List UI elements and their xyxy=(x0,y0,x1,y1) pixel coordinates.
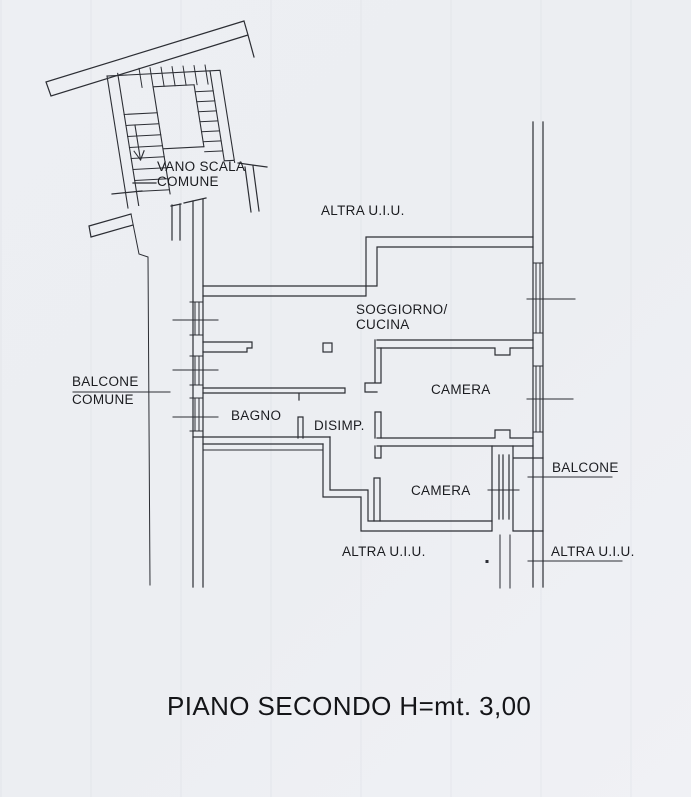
camera-middle-wall xyxy=(377,430,533,446)
stair-down-arrow-icon xyxy=(130,125,146,161)
label-camera-upper: CAMERA xyxy=(431,383,491,398)
window-left-1 xyxy=(173,302,218,335)
label-altra-uiu-bottom-right: ALTRA U.I.U. xyxy=(551,545,635,560)
label-soggiorno-line2: CUCINA xyxy=(356,318,448,333)
label-altra-uiu-bottom-left: ALTRA U.I.U. xyxy=(342,545,426,560)
label-soggiorno-cucina: SOGGIORNO/ CUCINA xyxy=(356,303,448,332)
label-balcone-comune: BALCONE COMUNE xyxy=(72,375,139,407)
window-right-camera xyxy=(527,366,573,432)
camera-top-wall xyxy=(377,340,533,355)
right-outer-wall xyxy=(533,122,543,587)
plan-title: PIANO SECONDO H=mt. 3,00 xyxy=(167,691,531,722)
label-bagno: BAGNO xyxy=(231,409,281,424)
window-left-3 xyxy=(173,398,218,431)
label-vano-scala-line2: COMUNE xyxy=(157,175,245,190)
label-balcone: BALCONE xyxy=(552,461,619,476)
floor-plan-page: VANO SCALA COMUNE ALTRA U.I.U. SOGGIORNO… xyxy=(0,0,691,797)
label-vano-scala-line1: VANO SCALA xyxy=(157,160,245,175)
window-left-2 xyxy=(173,356,218,385)
soggiorno-nib-wall xyxy=(203,342,252,352)
stair-treads-top-landing xyxy=(139,65,208,87)
soggiorno-pillar xyxy=(323,343,332,352)
label-soggiorno-line1: SOGGIORNO/ xyxy=(356,303,448,318)
plan-dot-mark xyxy=(486,560,489,563)
left-outer-wall xyxy=(193,199,203,587)
label-balcone-comune-line1: BALCONE xyxy=(72,375,139,390)
label-disimp: DISIMP. xyxy=(314,419,365,434)
window-right-soggiorno xyxy=(527,263,575,333)
label-vano-scala: VANO SCALA COMUNE xyxy=(157,160,245,189)
label-camera-lower: CAMERA xyxy=(411,484,471,499)
label-balcone-comune-line2: COMUNE xyxy=(72,393,139,408)
windows xyxy=(173,263,575,490)
neighbour-unit-lines xyxy=(203,450,510,588)
top-walls xyxy=(203,237,533,296)
balcone-walls xyxy=(492,446,543,531)
label-altra-uiu-top: ALTRA U.I.U. xyxy=(321,204,405,219)
entry-wall-stubs xyxy=(171,198,206,240)
bagno-bottom-wall xyxy=(193,437,330,444)
stair-treads-right-flight xyxy=(195,91,223,152)
